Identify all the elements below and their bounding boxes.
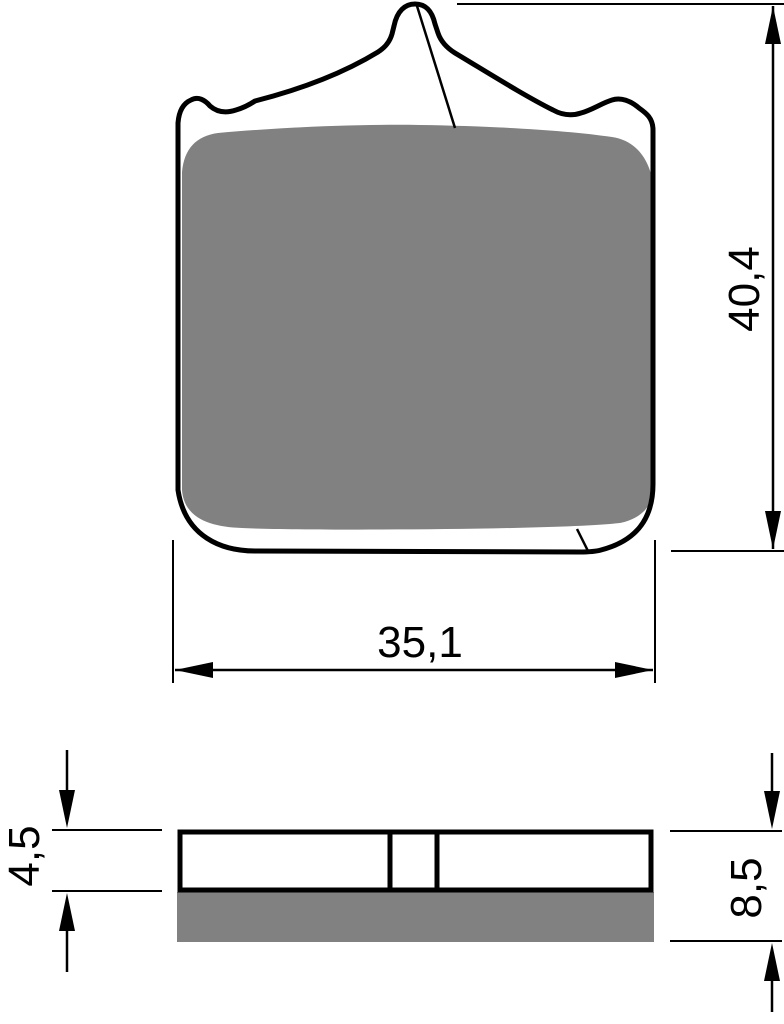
dimension-label-width: 35,1: [377, 618, 463, 667]
arrow-up-icon: [59, 893, 75, 931]
dimension-label-height: 40,4: [720, 246, 769, 332]
technical-drawing-page: 40,4 35,1 4,5 8,5: [0, 0, 784, 1024]
dimension-front-width: 35,1: [173, 540, 655, 683]
arrow-down-icon: [59, 790, 75, 828]
chamfer-tick-line: [577, 529, 589, 553]
dimension-plate-thickness: 4,5: [0, 750, 162, 972]
arrow-up-icon: [765, 6, 781, 44]
arrow-right-icon: [615, 662, 653, 678]
dimension-label-plate-thickness: 4,5: [0, 825, 49, 886]
arrow-up-icon: [764, 943, 780, 981]
side-view: [177, 831, 654, 942]
backplate-side: [180, 832, 651, 890]
front-view: [178, 4, 655, 553]
arrow-down-icon: [765, 511, 781, 549]
brake-pad-drawing: 40,4 35,1 4,5 8,5: [0, 0, 784, 1024]
arrow-down-icon: [764, 791, 780, 829]
friction-material-side: [177, 892, 654, 942]
arrow-left-icon: [175, 662, 213, 678]
friction-material-front: [182, 125, 655, 530]
dimension-label-total-thickness: 8,5: [722, 857, 771, 918]
dimension-total-thickness: 8,5: [670, 753, 782, 1012]
